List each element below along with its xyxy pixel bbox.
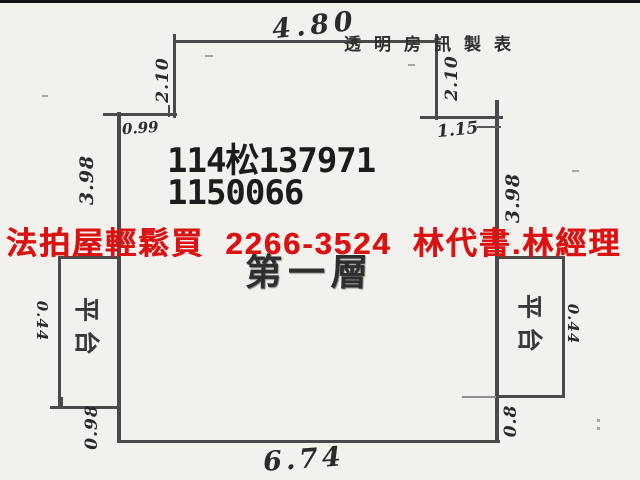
dim-left-upper-height: 2.10 (148, 55, 178, 105)
wall-left-main (117, 112, 121, 443)
right-platform-tick (462, 396, 496, 398)
dim-bottom-width: 6.74 (262, 441, 346, 478)
wall-bottom (117, 440, 500, 443)
left-step-tick (168, 105, 170, 117)
dim-right-upper-height: 2.10 (437, 53, 467, 103)
case-number-line2: 1150066 (167, 177, 303, 209)
scan-speck (597, 427, 600, 430)
left-platform-label: 平台 (60, 302, 116, 358)
watermark-text: 透明房訊製表 (344, 30, 524, 55)
dim-left-wall-height: 3.98 (70, 154, 104, 206)
floor-plan-scan: 4.80 2.10 2.10 0.99 1.15 3.98 3.98 0.44 … (0, 0, 640, 480)
right-platform-label: 平台 (503, 299, 559, 355)
left-platform-tick (61, 397, 63, 408)
dim-right-step-width: 1.15 (436, 118, 479, 142)
dim-right-platform-width: 0.44 (558, 300, 588, 348)
scan-speck (597, 419, 600, 422)
scan-speck (572, 170, 579, 172)
dim-right-wall-height: 3.98 (496, 172, 530, 224)
wall-right-main (495, 100, 499, 443)
scan-speck (42, 95, 48, 97)
dim-right-lower-height: 0.8 (495, 398, 527, 444)
dim-left-platform-width: 0.44 (27, 297, 57, 345)
dim-115-overbar (477, 126, 501, 128)
ad-overlay-text: 法拍屋輕鬆買 2266-3524 林代書.林經理 (6, 218, 621, 263)
scan-speck (205, 55, 213, 57)
dim-left-lower-height: 0.98 (76, 401, 108, 453)
wall-left-step-horizontal (103, 113, 177, 116)
dim-left-step-width: 0.99 (121, 118, 159, 139)
scan-speck (408, 64, 415, 66)
top-border-bar (0, 0, 640, 3)
